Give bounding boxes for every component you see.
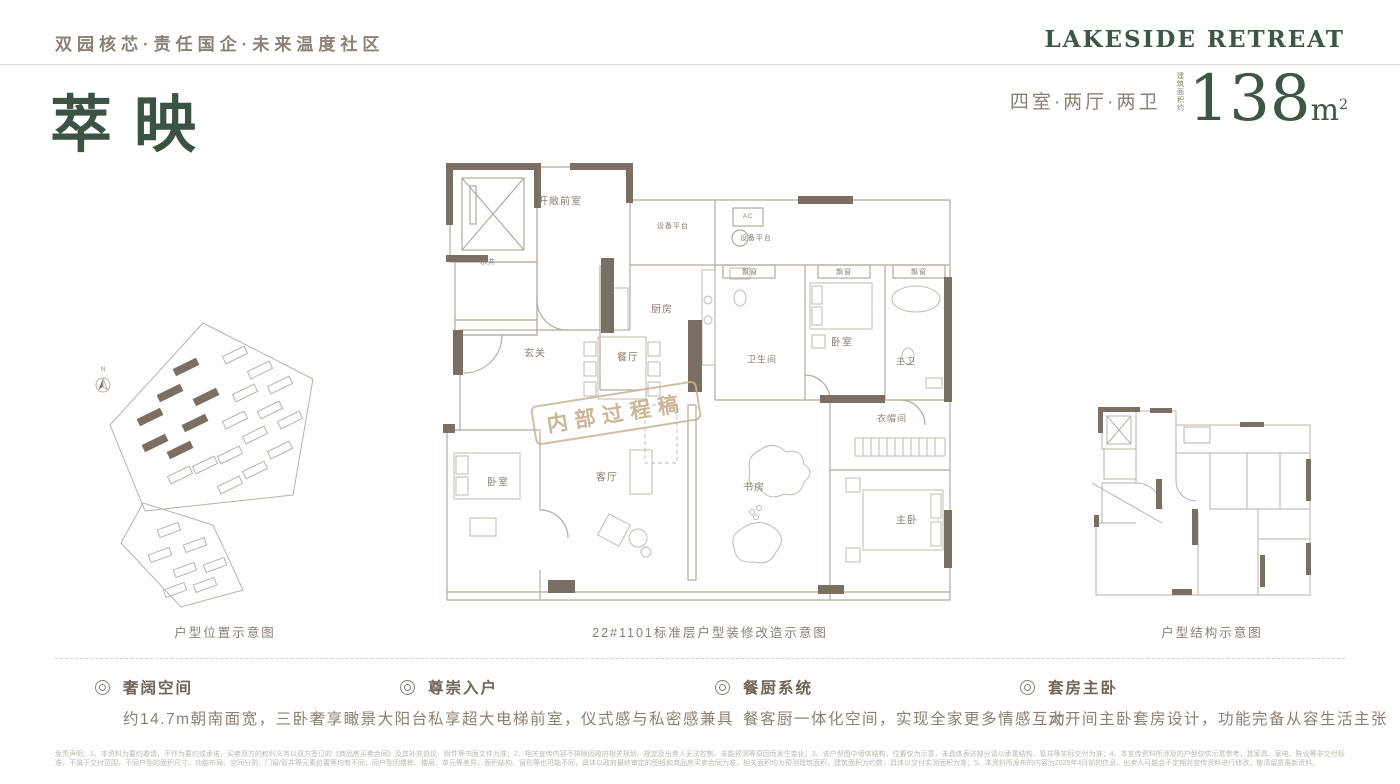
room-label-master-bedroom: 主卧 [896,512,918,527]
feature-desc: 餐客厨一体化空间，实现全家更多情感互动 [743,707,1066,729]
feature-title: 套房主卧 [1048,676,1118,698]
north-label: N [101,367,105,373]
page-title: 萃映 [50,74,218,164]
feature-desc: 约14.7m朝南面宽，三卧奢享瞰景大阳台 [123,707,429,729]
feature-desc: 大开间主卧套房设计，功能完备从容生活主张 [1048,707,1388,729]
room-label-bay-window-3: 飘窗 [911,267,927,277]
room-label-master-bath: 主卫 [896,355,916,368]
room-label-front-room: 开敞前室 [538,193,582,208]
feature-title: 尊崇入户 [428,676,498,698]
room-label-bedroom-1: 卧室 [487,474,509,489]
site-plan-caption: 户型位置示意图 [85,622,365,641]
bullet-ring-icon [400,680,415,695]
layout-spec: 四室·两厅·两卫 [1010,87,1161,114]
site-plan-drawing: N [85,315,365,615]
feature-title: 餐厨系统 [743,676,813,698]
room-label-dining-room: 餐厅 [617,349,639,364]
bullet-ring-icon [1020,680,1035,695]
site-plan-figure: N [85,315,365,615]
area-unit: m2 [1311,93,1348,128]
room-label-bay-window-2: 飘窗 [836,267,852,277]
floor-plan-drawing [440,150,980,615]
unit-spec: 四室·两厅·两卫 建筑面积约 138 m2 [1010,70,1348,128]
room-label-bedroom-2: 卧室 [831,334,853,349]
structure-drawing [1092,403,1332,615]
room-label-equipment-platform-2: 设备平台 [740,233,772,243]
structure-caption: 户型结构示意图 [1092,622,1332,641]
bullet-ring-icon [95,680,110,695]
feature-kitchen: 餐厨系统 餐客厨一体化空间，实现全家更多情感互动 [715,676,1066,729]
room-label-equipment-platform-1: 设备平台 [657,221,689,231]
feature-space: 奢阔空间 约14.7m朝南面宽，三卧奢享瞰景大阳台 [95,676,429,729]
poster-page: 双园核芯·责任国企·未来温度社区 LAKESIDE RETREAT 萃映 四室·… [0,0,1400,784]
room-label-living-room: 客厅 [596,469,618,484]
room-label-ac: AC [743,214,753,220]
features-divider [55,658,1345,659]
room-label-bay-window-1: 飘窗 [742,267,758,277]
floor-plan-figure: 内部过程稿 开敞前室水井设备平台AC设备平台飘窗飘窗飘窗玄关厨房餐厅卫生间卧室主… [440,150,980,615]
area-value: 138 [1188,70,1310,128]
feature-entry: 尊崇入户 私享超大电梯前室，仪式感与私密感兼具 [400,676,734,729]
header-tagline: 双园核芯·责任国企·未来温度社区 [55,30,384,55]
feature-desc: 私享超大电梯前室，仪式感与私密感兼具 [428,707,734,729]
room-label-kitchen: 厨房 [651,301,673,316]
feature-title: 奢阔空间 [123,676,193,698]
structure-figure [1092,403,1332,615]
room-label-foyer: 玄关 [524,345,546,360]
brand-logo: LAKESIDE RETREAT [1045,26,1346,53]
room-label-bathroom: 卫生间 [747,353,777,366]
feature-master: 套房主卧 大开间主卧套房设计，功能完备从容生活主张 [1020,676,1388,729]
area-prefix-label: 建筑面积约 [1174,72,1184,112]
room-label-study: 书房 [743,479,765,494]
floor-plan-caption: 22#1101标准层户型装修改造示意图 [440,622,980,641]
room-label-cloakroom: 衣帽间 [877,412,907,425]
disclaimer-text: 免责声明：1、本资料为要约邀请，不作为要约或承诺，买卖双方的权利义务以双方签订的… [55,750,1347,768]
north-arrow-icon [96,378,110,392]
bullet-ring-icon [715,680,730,695]
room-label-water-shaft: 水井 [480,257,496,267]
